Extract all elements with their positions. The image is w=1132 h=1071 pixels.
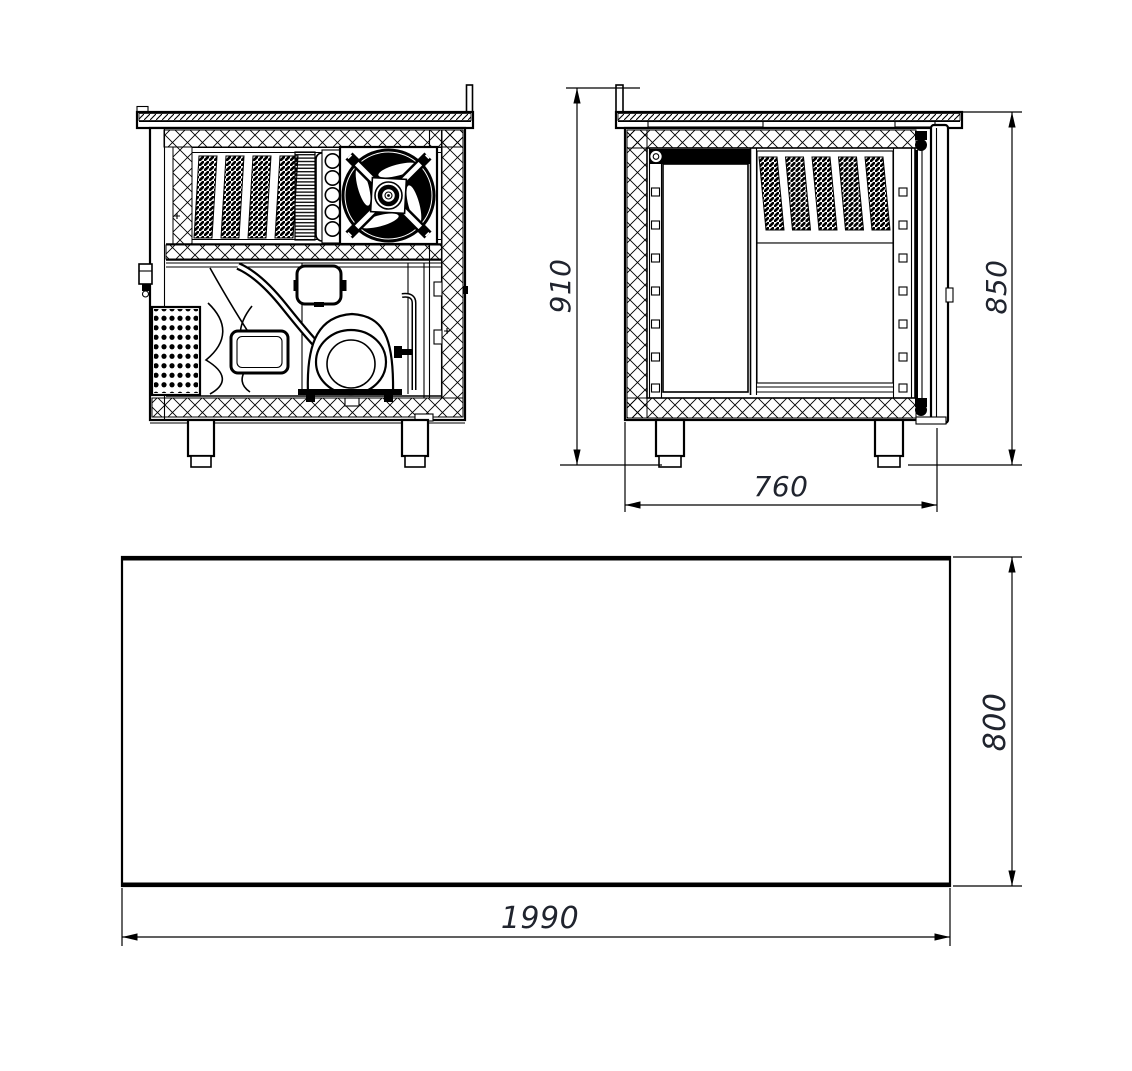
insulation-rear [627, 130, 647, 418]
worktop-outline [122, 557, 950, 886]
leg [188, 420, 214, 456]
leg [402, 420, 428, 456]
leg-foot [191, 456, 211, 467]
drawing-sheet: 910 850 760 1990 800 [0, 0, 1132, 1071]
compartment-divider [166, 244, 442, 260]
door-hinge-top [915, 139, 927, 151]
insulation-bottom [627, 398, 916, 418]
plan-view [122, 557, 950, 886]
countertop [616, 112, 962, 128]
side-section-view [616, 85, 962, 467]
door-hinge-bottom [915, 404, 927, 416]
rail-hole [899, 188, 907, 196]
leg-foot [878, 456, 900, 467]
rail-hole [652, 221, 660, 229]
rail-hole [899, 221, 907, 229]
insulation-top [627, 130, 916, 148]
door-hinge-top [915, 131, 927, 140]
dimension-label-length: 1990 [501, 901, 579, 936]
hinge-pin [463, 286, 468, 294]
rail-hole [899, 353, 907, 361]
rail-hole [652, 287, 660, 295]
backsplash-edge [467, 85, 473, 112]
dimension-length-1990: 1990 [122, 888, 950, 946]
inner-compartment [663, 164, 748, 392]
dimension-label-depth: 760 [754, 470, 809, 503]
rail-hole [899, 254, 907, 262]
rail-hole [652, 188, 660, 196]
rail-hole [652, 384, 660, 392]
dimension-label-plan-depth: 800 [978, 693, 1013, 752]
leg-foot [659, 456, 681, 467]
evaporator-fan-hub [650, 150, 662, 162]
leg-foot [405, 456, 425, 467]
backsplash-edge [616, 85, 623, 112]
front-view [137, 85, 473, 467]
insulation-right [442, 130, 463, 398]
wall-tab [434, 330, 442, 344]
rail-hole [652, 320, 660, 328]
junction-box [297, 266, 341, 304]
technical-drawing-canvas: 910 850 760 1990 800 [0, 0, 1132, 1071]
rail-hole [899, 287, 907, 295]
evaporator-housing [650, 149, 750, 164]
dimension-label-body-height: 850 [980, 260, 1013, 315]
rail-hole [899, 320, 907, 328]
condenser-coil [295, 150, 343, 243]
wall-tab [434, 282, 442, 296]
fan-hub [371, 178, 407, 214]
leg [875, 420, 903, 456]
insulation-left-upper [173, 147, 192, 245]
lower-panel [757, 243, 893, 383]
door-bottom-flange [916, 417, 946, 424]
louver-panel-section [757, 151, 893, 243]
countertop-hatch-band [618, 114, 960, 121]
side-view-legs [656, 420, 903, 467]
front-view-legs [188, 420, 428, 467]
condenser-fan [340, 147, 437, 244]
dimension-label-overall-height: 910 [544, 259, 577, 314]
drain-fitting [345, 398, 359, 406]
door-panel [931, 125, 948, 423]
door-gasket-stop [946, 288, 953, 302]
insulation-top [164, 130, 463, 147]
countertop [137, 107, 473, 129]
countertop-hatch-band [139, 114, 471, 121]
rail-hole [652, 353, 660, 361]
rail-hole [652, 254, 660, 262]
leg [656, 420, 684, 456]
dimension-plan-depth-800: 800 [953, 557, 1022, 886]
rail-hole [899, 384, 907, 392]
